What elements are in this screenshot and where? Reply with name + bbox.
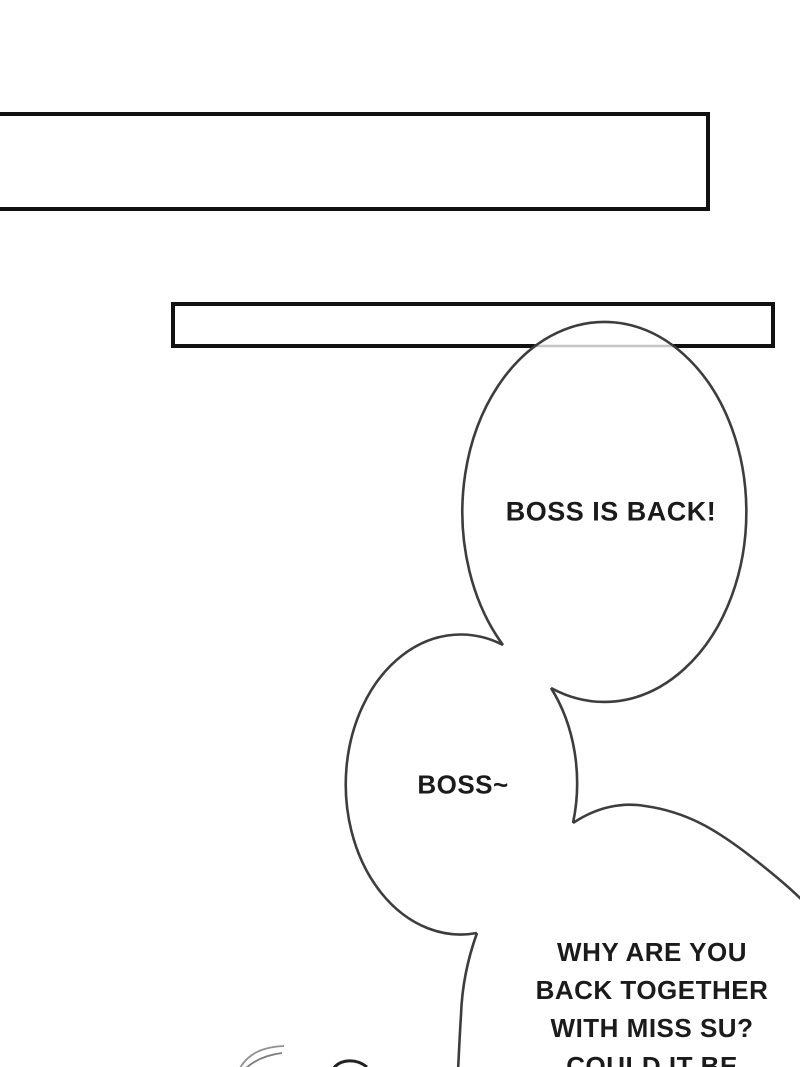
- top-caption-box: [0, 114, 708, 209]
- speech-text-boss: BOSS~: [417, 770, 508, 801]
- speech-text-boss-is-back: BOSS IS BACK!: [506, 497, 717, 528]
- line-art-layer: [0, 0, 800, 1067]
- speech-text-line: WITH MISS SU?: [536, 1009, 769, 1047]
- second-caption-box: [173, 304, 773, 346]
- hair-stroke-icon: [240, 1046, 284, 1067]
- speech-text-line: COULD IT BE: [536, 1047, 769, 1067]
- speech-text-why-are-you: WHY ARE YOU BACK TOGETHER WITH MISS SU? …: [536, 933, 769, 1067]
- speech-text-line: WHY ARE YOU: [536, 933, 769, 971]
- comic-page: BOSS IS BACK! BOSS~ WHY ARE YOU BACK TOG…: [0, 0, 800, 1067]
- hair-stroke-icon: [242, 1053, 282, 1067]
- head-top-stroke-icon: [333, 1061, 367, 1067]
- speech-text-line: BACK TOGETHER: [536, 971, 769, 1009]
